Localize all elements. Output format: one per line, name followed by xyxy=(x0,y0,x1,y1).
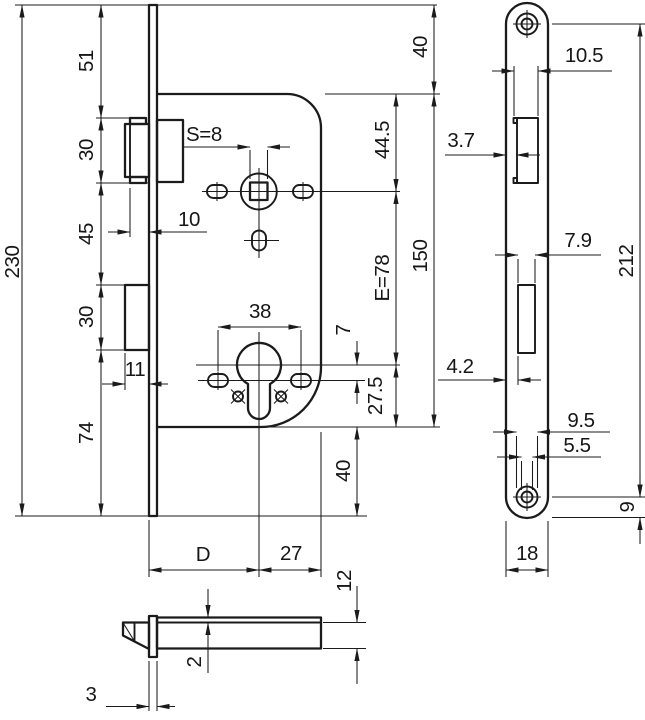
deadbolt xyxy=(125,285,149,350)
lock-case-outline xyxy=(157,94,321,427)
dim-case-depth-label: 12 xyxy=(333,570,356,592)
dim-44-5-label: 44.5 xyxy=(371,121,394,159)
faceplate-view: 10.5 3.7 7.9 4.2 9.5 5. xyxy=(438,3,645,577)
front-view-labels: 230 51 30 45 30 74 40 44.5 150 E=78 7 27… xyxy=(1,36,432,566)
dim-bolt-cutout-offset-label: 4.2 xyxy=(446,355,473,378)
dim-27-label: 27 xyxy=(280,542,302,565)
bottom-view-dimensions: 12 2 3 xyxy=(85,570,366,711)
dim-30-latch-label: 30 xyxy=(75,139,98,161)
dim-40-bottom-label: 40 xyxy=(332,460,355,482)
dim-backset-label: D xyxy=(196,543,210,566)
dim-latch-throw-label: 10 xyxy=(178,208,200,231)
faceplate-edge xyxy=(149,5,157,516)
latch-bolt xyxy=(125,118,183,183)
dim-51-label: 51 xyxy=(75,50,98,72)
dim-latch-cutout-offset-label: 3.7 xyxy=(447,129,474,152)
dim-screw-hole-dia-label: 5.5 xyxy=(563,434,590,457)
dim-74-label: 74 xyxy=(75,422,98,444)
bottom-view: 12 2 3 xyxy=(85,570,366,711)
faceplate-view-dimensions: 10.5 3.7 7.9 4.2 9.5 5. xyxy=(438,24,645,577)
dim-40-top-label: 40 xyxy=(409,36,432,58)
dim-150-label: 150 xyxy=(409,239,432,272)
dim-bolt-throw-label: 11 xyxy=(125,358,145,381)
dim-e78-label: E=78 xyxy=(371,255,394,302)
dim-7-label: 7 xyxy=(332,324,355,335)
front-view: 230 51 30 45 30 74 40 44.5 150 E=78 7 27… xyxy=(1,5,440,577)
dim-plate-width-label: 18 xyxy=(516,542,538,565)
bolt-cutout xyxy=(518,285,535,353)
faceplate-bottom-profile xyxy=(149,616,157,657)
technical-drawing-page: 230 51 30 45 30 74 40 44.5 150 E=78 7 27… xyxy=(0,0,645,720)
bottom-screw-hole xyxy=(513,483,541,511)
dim-total-height-label: 230 xyxy=(1,245,24,278)
dim-latch-cutout-width-label: 10.5 xyxy=(565,44,603,67)
dim-lid-thickness-label: 2 xyxy=(183,656,206,667)
dim-screw-spacing-212-label: 212 xyxy=(615,244,638,277)
latch-bevel-profile xyxy=(123,623,149,650)
latch-cutout xyxy=(514,118,539,183)
dim-spindle-square-label: S=8 xyxy=(186,123,222,146)
dim-bolt-cutout-width-label: 7.9 xyxy=(564,229,591,252)
dim-screw-head-dia-label: 9.5 xyxy=(567,409,594,432)
dim-27-5-label: 27.5 xyxy=(364,377,387,415)
dim-plate-thickness-label: 3 xyxy=(85,683,96,706)
mortise-lock-drawing: 230 51 30 45 30 74 40 44.5 150 E=78 7 27… xyxy=(0,0,645,720)
dim-screw-to-end-label: 9 xyxy=(616,501,639,512)
dim-screw-spacing-label: 38 xyxy=(249,300,271,323)
faceplate-outline xyxy=(506,3,548,518)
top-screw-hole xyxy=(513,10,541,38)
dim-45-label: 45 xyxy=(75,223,98,245)
dim-30-bolt-label: 30 xyxy=(75,306,98,328)
